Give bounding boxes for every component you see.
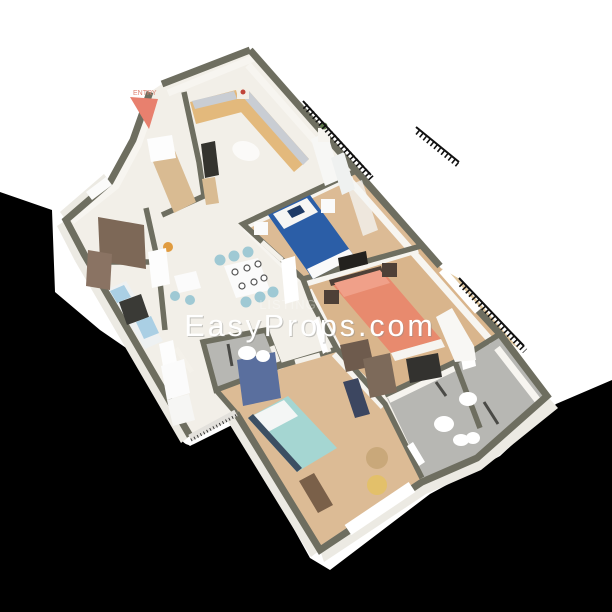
svg-text:EasyProps.com: EasyProps.com [184,309,435,343]
svg-text:ENTRY: ENTRY [133,90,157,97]
